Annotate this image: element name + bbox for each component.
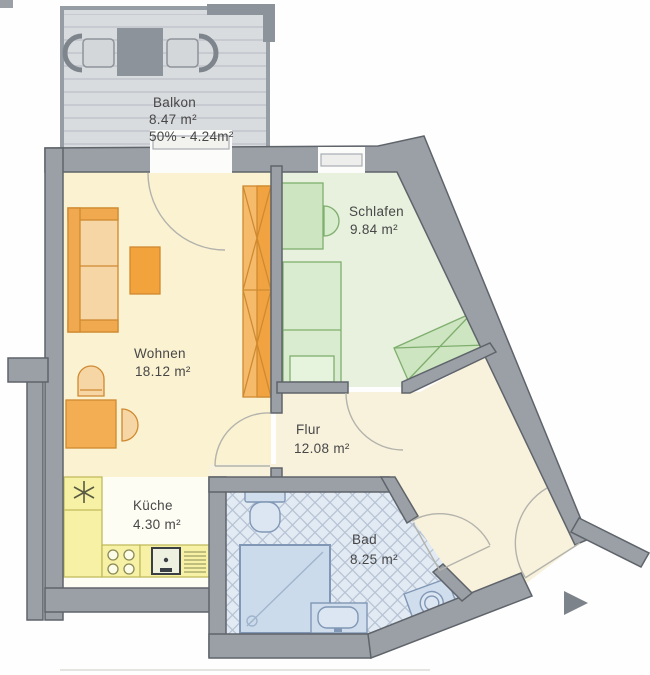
wall-kitchen-bottom — [45, 588, 225, 612]
balkon-label: Balkon — [153, 95, 196, 110]
wall-left — [45, 148, 63, 620]
balkon-area: 8.47 m² — [149, 112, 197, 127]
wall-bath-bottom — [209, 634, 371, 658]
wall-kitchen-bath — [209, 477, 226, 657]
kueche-label: Küche — [133, 498, 173, 513]
coffee-table — [130, 247, 160, 294]
floor-plan-page: Balkon 8.47 m² 50% - 4.24m² Schlafen 9.8… — [0, 0, 650, 675]
balcony-chair-left — [83, 39, 114, 67]
floor-plan-drawing: Balkon 8.47 m² 50% - 4.24m² Schlafen 9.8… — [0, 0, 650, 675]
balcony-table — [117, 28, 163, 76]
desk — [281, 183, 323, 249]
schlafen-label: Schlafen — [349, 204, 404, 219]
wall-left-stub — [8, 358, 48, 382]
dining-table — [66, 400, 116, 448]
wohnen-area: 18.12 m² — [135, 364, 191, 379]
wall-left-outer — [27, 380, 43, 620]
scan-artifact-corner — [0, 0, 13, 8]
window-schlafen-frame — [321, 154, 362, 166]
bath-sink — [311, 603, 367, 633]
balcony-chair-right — [167, 39, 198, 67]
sofa-back — [68, 208, 80, 332]
balkon-share: 50% - 4.24m² — [149, 129, 234, 144]
flur-area: 12.08 m² — [294, 441, 350, 456]
entrance-arrow-icon — [564, 591, 588, 615]
kueche-area: 4.30 m² — [133, 517, 181, 532]
toilet — [245, 487, 285, 532]
bad-label: Bad — [352, 532, 377, 547]
stove — [102, 545, 140, 577]
wall-schlafen-bottom — [277, 382, 348, 393]
schlafen-area: 9.84 m² — [350, 222, 398, 237]
wall-bad-top — [209, 477, 389, 492]
bad-area: 8.25 m² — [350, 552, 398, 567]
wohnen-label: Wohnen — [134, 346, 186, 361]
wall-wohnen-schlafen — [271, 166, 282, 413]
flur-label: Flur — [296, 422, 321, 437]
wardrobe-wohnen — [243, 186, 271, 397]
dining-chair-top — [78, 366, 104, 396]
bed-pillow — [290, 356, 334, 382]
